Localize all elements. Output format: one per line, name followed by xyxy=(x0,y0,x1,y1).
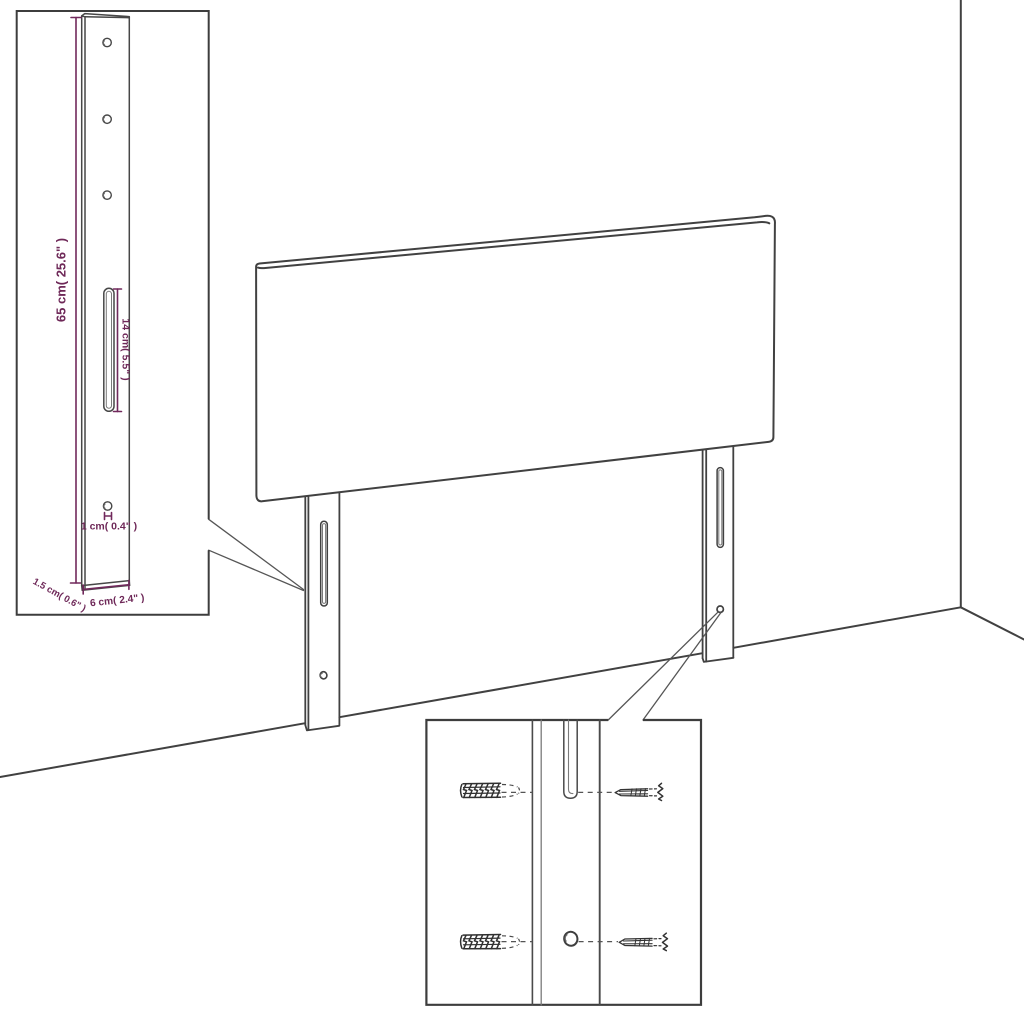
svg-text:1 cm( 0.4" ): 1 cm( 0.4" ) xyxy=(81,521,137,533)
svg-text:6 cm( 2.4" ): 6 cm( 2.4" ) xyxy=(89,593,145,610)
svg-text:1.5 cm( 0.6" ): 1.5 cm( 0.6" ) xyxy=(31,576,88,614)
svg-text:14 cm( 5.5" ): 14 cm( 5.5" ) xyxy=(120,318,132,380)
svg-text:65 cm( 25.6" ): 65 cm( 25.6" ) xyxy=(54,238,69,322)
